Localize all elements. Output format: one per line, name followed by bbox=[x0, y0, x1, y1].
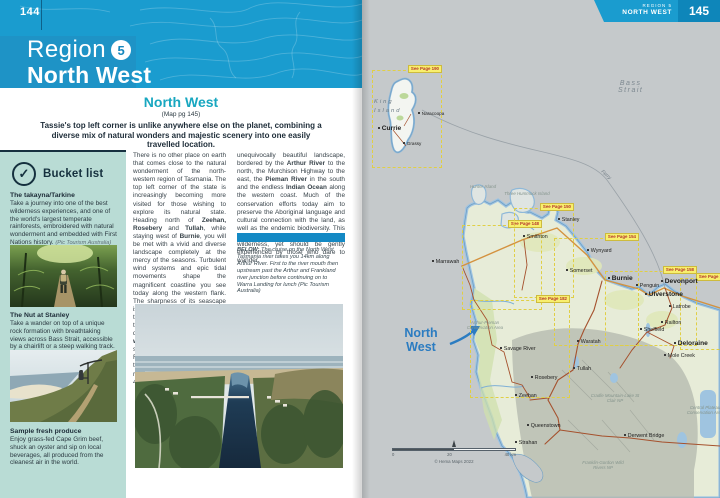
town-label: Stanley bbox=[558, 217, 579, 223]
town-label: Tullah bbox=[573, 366, 591, 372]
bucket-item-text: Enjoy grass-fed Cape Grim beef, shuck an… bbox=[10, 436, 103, 466]
king-island-label: King Island bbox=[374, 98, 401, 115]
town-label: Devonport bbox=[661, 278, 698, 285]
section-map-ref: (Map pg 145) bbox=[0, 111, 362, 118]
scale-bar bbox=[392, 448, 516, 451]
divider-bar bbox=[237, 233, 345, 242]
page-right-map: See Page 190 See Page 148 See Page 150 S… bbox=[362, 0, 720, 498]
town-label: Ulverstone bbox=[645, 291, 683, 298]
bass-strait-label: Bass Strait bbox=[618, 80, 643, 94]
inset-box: See Page 190 bbox=[372, 70, 442, 168]
see-page-tab: See Page 182 bbox=[536, 295, 570, 303]
bucket-list-sidebar: ✓ Bucket list The takayna/Tarkine Take a… bbox=[0, 150, 126, 498]
page-left: 144 Region 5 North West North West (Map … bbox=[0, 0, 362, 498]
see-page-tab: See Page 158 bbox=[663, 266, 697, 274]
page-gutter bbox=[352, 0, 370, 498]
bucket-item-title: The takayna/Tarkine bbox=[10, 192, 117, 199]
bucket-item-body: Take a journey into one of the best wild… bbox=[10, 200, 117, 248]
town-label: Somerset bbox=[566, 268, 592, 274]
bucket-item-produce: Sample fresh produce Enjoy grass-fed Cap… bbox=[10, 428, 117, 467]
town-label: Currie bbox=[378, 125, 401, 132]
town-label: Savage River bbox=[500, 346, 536, 352]
photo-caption: BELOW: The cruise on the North West Tasm… bbox=[237, 247, 343, 295]
town-label: Waratah bbox=[577, 339, 601, 345]
arthur-river-photo-art bbox=[135, 304, 343, 468]
rainforest-photo bbox=[10, 245, 117, 307]
header-rule bbox=[41, 0, 42, 30]
north-arrow-icon bbox=[452, 440, 456, 447]
town-label: Sheffield bbox=[640, 327, 664, 333]
bucket-item-title: Sample fresh produce bbox=[10, 428, 117, 435]
bucket-item-body: Enjoy grass-fed Cape Grim beef, shuck an… bbox=[10, 436, 117, 467]
bucket-list-header: ✓ Bucket list bbox=[12, 162, 103, 186]
region-name: North West bbox=[27, 64, 151, 87]
bucket-list-title: Bucket list bbox=[43, 168, 103, 180]
rainforest-photo-art bbox=[10, 245, 117, 307]
scale-start: 0 bbox=[392, 452, 394, 457]
bucket-item-title: The Nut at Stanley bbox=[10, 312, 117, 319]
see-page-tab: See Page 150 bbox=[540, 203, 574, 211]
region-number-badge: 5 bbox=[111, 40, 131, 60]
chairlift-photo bbox=[10, 350, 117, 422]
town-label: Derwent Bridge bbox=[624, 433, 664, 439]
town-label: Queenstown bbox=[527, 423, 561, 429]
north-west-map-label: North West bbox=[390, 326, 452, 355]
chairlift-photo-art bbox=[10, 350, 117, 422]
town-label: Zeehan bbox=[515, 393, 537, 399]
see-page-tab: See Page 162 bbox=[696, 273, 720, 281]
scale-end: 40 km bbox=[505, 452, 516, 457]
town-label: Rosebery bbox=[531, 375, 557, 381]
see-page-tab: See Page 154 bbox=[605, 233, 639, 241]
corner-tab-name: NORTH WEST bbox=[622, 9, 672, 17]
scale-mid: 20 bbox=[447, 452, 452, 457]
town-label: Strahan bbox=[515, 440, 537, 446]
town-label: Mole Creek bbox=[664, 353, 695, 359]
area-label: Arthur-Pieman Conservation Area bbox=[460, 320, 510, 330]
town-label: Smithton bbox=[523, 234, 548, 240]
area-label: Cradle Mountain-Lake St Clair NP bbox=[590, 393, 640, 403]
corner-tab-text: REGION 5 NORTH WEST bbox=[622, 3, 672, 17]
book-spread: 144 Region 5 North West North West (Map … bbox=[0, 0, 720, 498]
map-credit: © Hema Maps 2022 bbox=[392, 459, 516, 464]
area-label: Central Plateau Conservation Area bbox=[680, 405, 720, 415]
bucket-item-text: Take a wander on top of a unique rock fo… bbox=[10, 320, 115, 350]
area-label: Franklin-Gordon Wild Rivers NP bbox=[578, 460, 628, 470]
town-label: Marrawah bbox=[432, 259, 459, 265]
town-label: Deloraine bbox=[674, 340, 708, 347]
town-label: Latrobe bbox=[669, 304, 691, 310]
town-label: Penguin bbox=[636, 283, 659, 289]
region-title: Region 5 North West bbox=[27, 38, 151, 87]
town-label: Burnie bbox=[608, 275, 633, 282]
area-label: Three Hummock Island bbox=[502, 191, 552, 196]
arthur-river-photo bbox=[135, 304, 343, 468]
section-title: North West bbox=[0, 94, 362, 110]
area-label: Hunter Island bbox=[458, 184, 508, 189]
section-heading: North West (Map pg 145) bbox=[0, 94, 362, 118]
page-number-right: 145 bbox=[678, 0, 720, 22]
town-label: Railton bbox=[661, 320, 681, 326]
region-header-band: 144 Region 5 North West bbox=[0, 0, 362, 88]
see-page-tab: See Page 190 bbox=[408, 65, 442, 73]
bucket-item-takayna: The takayna/Tarkine Take a journey into … bbox=[10, 192, 117, 248]
page-number-left: 144 bbox=[20, 6, 40, 18]
town-label: Wynyard bbox=[587, 248, 612, 254]
town-label: Naracoopa bbox=[418, 111, 444, 116]
map-scale: 0 20 40 km © Hema Maps 2022 bbox=[392, 440, 516, 464]
check-circle-icon: ✓ bbox=[12, 162, 36, 186]
town-label: Grassy bbox=[403, 141, 421, 146]
section-intro: Tassie's top left corner is unlike anywh… bbox=[40, 121, 322, 150]
region-label: Region bbox=[27, 38, 106, 62]
